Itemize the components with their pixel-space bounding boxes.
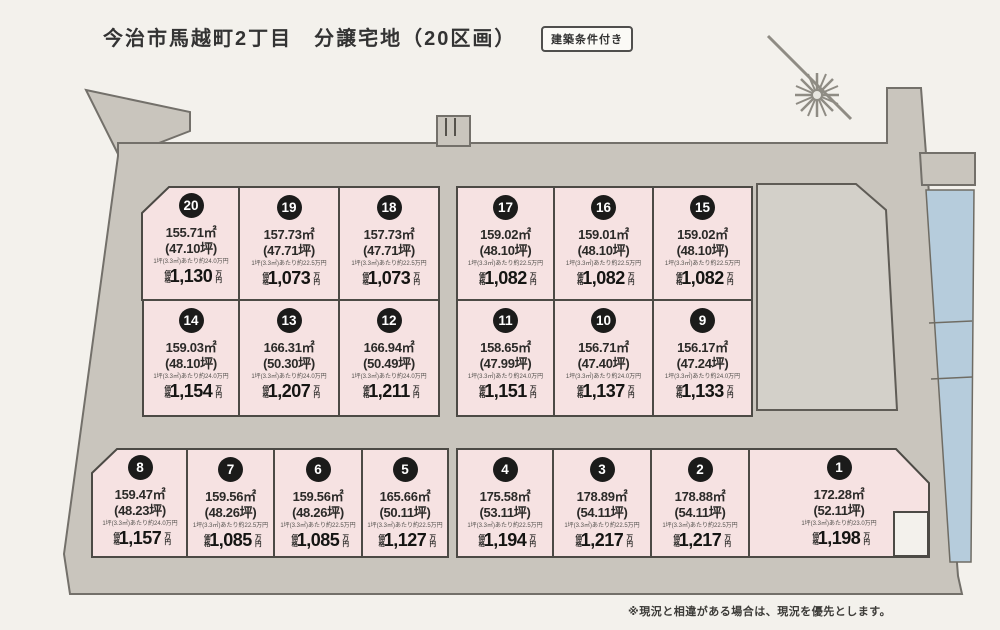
plot-price: 価格1,133万円 [673,381,733,402]
plot-area-tsubo: (48.10坪) [578,243,630,259]
price-unit: 万円 [725,385,732,398]
price-unit: 万円 [213,385,220,398]
plot-area-m2: 166.31㎡ [264,340,315,356]
plot-unit-price: 1坪(3.3㎡)あたり約22.5万円 [251,261,326,267]
plot-area-tsubo: (50.49坪) [363,356,415,372]
plot-11: 11 158.65㎡ (47.99坪) 1坪(3.3㎡)あたり約24.0万円 価… [456,299,555,417]
price-value: 1,217 [679,530,722,551]
price-unit: 万円 [725,272,732,285]
plot-unit-price: 1坪(3.3㎡)あたり約24.0万円 [665,374,740,380]
plot-8: 8 159.47㎡ (48.23坪) 1坪(3.3㎡)あたり約24.0万円 価格… [92,448,188,558]
price-unit: 万円 [722,534,729,547]
plot-number-badge: 15 [690,195,715,220]
price-value: 1,198 [818,528,861,549]
plot-unit-price: 1坪(3.3㎡)あたり約22.5万円 [468,261,543,267]
plot-area-tsubo: (48.23坪) [114,503,166,519]
price-prefix: 価格 [674,272,681,285]
plot-14: 14 159.03㎡ (48.10坪) 1坪(3.3㎡)あたり約24.0万円 価… [142,299,240,417]
plot-5: 5 165.66㎡ (50.11坪) 1坪(3.3㎡)あたり約22.5万円 価格… [361,448,449,558]
plot-area-tsubo: (50.30坪) [263,356,315,372]
plot-number-badge: 19 [277,195,302,220]
building-conditions-badge: 建築条件付き [541,26,633,52]
plot-1: 1 172.28㎡ (52.11坪) 1坪(3.3㎡)あたり約23.0万円 価格… [748,448,930,558]
plot-number-badge: 20 [179,193,204,218]
plot-17: 17 159.02㎡ (48.10坪) 1坪(3.3㎡)あたり約22.5万円 価… [456,186,555,301]
plot-area-m2: 175.58㎡ [480,489,531,505]
price-prefix: 価格 [162,385,169,398]
price-value: 1,130 [170,266,213,287]
plot-number-badge: 6 [306,457,331,482]
plot-area-m2: 155.71㎡ [166,225,217,241]
price-prefix: 価格 [573,534,580,547]
plot-number-badge: 8 [128,455,153,480]
price-unit: 万円 [427,534,434,547]
price-prefix: 価格 [671,534,678,547]
price-prefix: 価格 [360,272,367,285]
price-unit: 万円 [626,385,633,398]
plot-area-m2: 178.89㎡ [577,489,628,505]
plot-unit-price: 1坪(3.3㎡)あたり約22.5万円 [367,523,442,529]
plot-3: 3 178.89㎡ (54.11坪) 1坪(3.3㎡)あたり約22.5万円 価格… [552,448,652,558]
plot-13: 13 166.31㎡ (50.30坪) 1坪(3.3㎡)あたり約24.0万円 価… [238,299,340,417]
plot-area-m2: 157.73㎡ [264,227,315,243]
plot-number-badge: 9 [690,308,715,333]
price-value: 1,082 [681,268,724,289]
plot-number-badge: 14 [179,308,204,333]
plot-area-m2: 156.17㎡ [677,340,728,356]
plot-unit-price: 1坪(3.3㎡)あたり約22.5万円 [665,261,740,267]
plot-price: 価格1,207万円 [259,381,319,402]
plot-unit-price: 1坪(3.3㎡)あたり約24.0万円 [566,374,641,380]
price-prefix: 価格 [476,534,483,547]
plot-10: 10 156.71㎡ (47.40坪) 1坪(3.3㎡)あたり約24.0万円 価… [553,299,654,417]
price-unit: 万円 [253,534,260,547]
plot-unit-price: 1坪(3.3㎡)あたり約24.0万円 [251,374,326,380]
plot-area-tsubo: (50.11坪) [379,505,430,521]
plot-7: 7 159.56㎡ (48.26坪) 1坪(3.3㎡)あたり約22.5万円 価格… [186,448,275,558]
plot-number-badge: 7 [218,457,243,482]
plot-unit-price: 1坪(3.3㎡)あたり約22.5万円 [662,523,737,529]
plot-4: 4 175.58㎡ (53.11坪) 1坪(3.3㎡)あたり約22.5万円 価格… [456,448,554,558]
price-prefix: 価格 [477,385,484,398]
plot-2: 2 178.88㎡ (54.11坪) 1坪(3.3㎡)あたり約22.5万円 価格… [650,448,750,558]
plot-area-m2: 178.88㎡ [675,489,726,505]
price-value: 1,073 [368,268,411,289]
plot-12: 12 166.94㎡ (50.49坪) 1坪(3.3㎡)あたり約24.0万円 価… [338,299,440,417]
plot-price: 価格1,137万円 [574,381,634,402]
plot-area-tsubo: (48.10坪) [480,243,532,259]
price-value: 1,211 [368,381,410,402]
plot-unit-price: 1坪(3.3㎡)あたり約22.5万円 [351,261,426,267]
plot-unit-price: 1坪(3.3㎡)あたり約23.0万円 [801,521,876,527]
plot-area-tsubo: (48.26坪) [205,505,257,521]
plot-area-tsubo: (54.11坪) [674,505,725,521]
page-title: 今治市馬越町2丁目 分譲宅地（20区画） [103,22,516,51]
plot-unit-price: 1坪(3.3㎡)あたり約22.5万円 [280,523,355,529]
plot-price: 価格1,082万円 [574,268,634,289]
plot-area-m2: 159.47㎡ [115,487,166,503]
plot-unit-price: 1坪(3.3㎡)あたり約22.5万円 [467,523,542,529]
north-compass-icon [768,36,851,119]
price-unit: 万円 [411,385,418,398]
plot-area-tsubo: (47.24坪) [677,356,729,372]
price-value: 1,137 [582,381,625,402]
plot-price: 価格1,194万円 [475,530,535,551]
plot-number-badge: 5 [393,457,418,482]
plot-area-tsubo: (48.10坪) [165,356,217,372]
price-unit: 万円 [340,534,347,547]
plot-area-m2: 156.71㎡ [578,340,629,356]
plot-area-tsubo: (47.99坪) [480,356,532,372]
plot-area-tsubo: (47.40坪) [578,356,630,372]
plot-area-m2: 165.66㎡ [380,489,431,505]
price-prefix: 価格 [361,385,368,398]
plot-9: 9 156.17㎡ (47.24坪) 1坪(3.3㎡)あたり約24.0万円 価格… [652,299,753,417]
price-prefix: 価格 [202,534,209,547]
plot-price: 価格1,130万円 [161,266,221,287]
price-value: 1,085 [209,530,252,551]
price-prefix: 価格 [162,270,169,283]
plot-unit-price: 1坪(3.3㎡)あたり約22.5万円 [564,523,639,529]
price-unit: 万円 [528,272,535,285]
plot-number-badge: 2 [688,457,713,482]
plot-price: 価格1,217万円 [572,530,632,551]
price-unit: 万円 [213,270,220,283]
plot-number-badge: 11 [493,308,518,333]
plot-price: 価格1,082万円 [673,268,733,289]
plot-unit-price: 1坪(3.3㎡)あたり約24.0万円 [153,259,228,265]
price-unit: 万円 [528,385,535,398]
plot-area-m2: 172.28㎡ [814,487,865,503]
price-value: 1,127 [384,530,427,551]
plot-number-badge: 1 [827,455,852,480]
price-prefix: 価格 [260,272,267,285]
price-value: 1,217 [581,530,624,551]
price-value: 1,133 [681,381,724,402]
price-value: 1,207 [268,381,311,402]
plot-unit-price: 1坪(3.3㎡)あたり約24.0万円 [468,374,543,380]
price-prefix: 価格 [477,272,484,285]
plot-area-tsubo: (48.10坪) [677,243,729,259]
plot-area-tsubo: (47.71坪) [263,243,315,259]
plot-area-m2: 166.94㎡ [364,340,415,356]
plot-19: 19 157.73㎡ (47.71坪) 1坪(3.3㎡)あたり約22.5万円 価… [238,186,340,301]
footnote: ※現況と相違がある場合は、現況を優先とします。 [628,603,891,619]
price-unit: 万円 [861,532,868,545]
plot-area-tsubo: (54.11坪) [576,505,627,521]
plot-area-m2: 158.65㎡ [480,340,531,356]
plot-unit-price: 1坪(3.3㎡)あたり約22.5万円 [193,523,268,529]
reserved-parcel [757,184,897,410]
plot-unit-price: 1坪(3.3㎡)あたり約24.0万円 [102,521,177,527]
plot-unit-price: 1坪(3.3㎡)あたり約24.0万円 [153,374,228,380]
price-unit: 万円 [162,532,169,545]
price-prefix: 価格 [260,385,267,398]
plot-price: 価格1,157万円 [110,528,170,549]
plot-area-m2: 159.03㎡ [166,340,217,356]
price-prefix: 価格 [111,532,118,545]
plot-price: 価格1,217万円 [670,530,730,551]
plot-20: 20 155.71㎡ (47.10坪) 1坪(3.3㎡)あたり約24.0万円 価… [142,186,240,301]
plot-area-m2: 159.56㎡ [293,489,344,505]
plot-number-badge: 17 [493,195,518,220]
price-value: 1,194 [484,530,527,551]
price-value: 1,151 [484,381,527,402]
plot-area-tsubo: (48.26坪) [292,505,344,521]
price-value: 1,073 [268,268,311,289]
plot-unit-price: 1坪(3.3㎡)あたり約24.0万円 [351,374,426,380]
plot-area-m2: 159.02㎡ [677,227,728,243]
plot-price: 価格1,151万円 [476,381,536,402]
plot-number-badge: 12 [377,308,402,333]
plot-price: 価格1,073万円 [359,268,419,289]
price-value: 1,082 [582,268,625,289]
price-unit: 万円 [626,272,633,285]
plot-15: 15 159.02㎡ (48.10坪) 1坪(3.3㎡)あたり約22.5万円 価… [652,186,753,301]
plot-area-tsubo: (47.71坪) [363,243,415,259]
plot-price: 価格1,211万円 [360,381,419,402]
price-value: 1,085 [297,530,340,551]
plot-unit-price: 1坪(3.3㎡)あたり約22.5万円 [566,261,641,267]
land-subdivision-flyer: 今治市馬越町2丁目 分譲宅地（20区画） 建築条件付き 20 155.71㎡ (… [0,0,1000,630]
plot-area-m2: 159.02㎡ [480,227,531,243]
plot-number-badge: 10 [591,308,616,333]
plot-price: 価格1,154万円 [161,381,221,402]
price-prefix: 価格 [810,532,817,545]
plot-number-badge: 4 [493,457,518,482]
price-unit: 万円 [624,534,631,547]
price-prefix: 価格 [674,385,681,398]
price-prefix: 価格 [575,272,582,285]
plot-area-m2: 159.01㎡ [578,227,629,243]
price-prefix: 価格 [289,534,296,547]
plot-area-tsubo: (47.10坪) [165,241,217,257]
price-prefix: 価格 [376,534,383,547]
plot-price: 価格1,198万円 [809,528,869,549]
plot-price: 価格1,085万円 [201,530,261,551]
plot-price: 価格1,127万円 [375,530,435,551]
price-unit: 万円 [311,385,318,398]
plot-price: 価格1,073万円 [259,268,319,289]
plot-number-badge: 18 [377,195,402,220]
plot-number-badge: 16 [591,195,616,220]
plot-area-tsubo: (52.11坪) [813,503,864,519]
plot-area-m2: 159.56㎡ [205,489,256,505]
plot-area-m2: 157.73㎡ [364,227,415,243]
plot-18: 18 157.73㎡ (47.71坪) 1坪(3.3㎡)あたり約22.5万円 価… [338,186,440,301]
plot-number-badge: 13 [277,308,302,333]
price-prefix: 価格 [575,385,582,398]
price-unit: 万円 [311,272,318,285]
plot-area-tsubo: (53.11坪) [479,505,530,521]
plot-price: 価格1,082万円 [476,268,536,289]
price-unit: 万円 [411,272,418,285]
price-value: 1,082 [484,268,527,289]
price-value: 1,157 [119,528,162,549]
plot-price: 価格1,085万円 [288,530,348,551]
price-value: 1,154 [170,381,213,402]
plot-number-badge: 3 [590,457,615,482]
plot-6: 6 159.56㎡ (48.26坪) 1坪(3.3㎡)あたり約22.5万円 価格… [273,448,363,558]
price-unit: 万円 [527,534,534,547]
plot-16: 16 159.01㎡ (48.10坪) 1坪(3.3㎡)あたり約22.5万円 価… [553,186,654,301]
